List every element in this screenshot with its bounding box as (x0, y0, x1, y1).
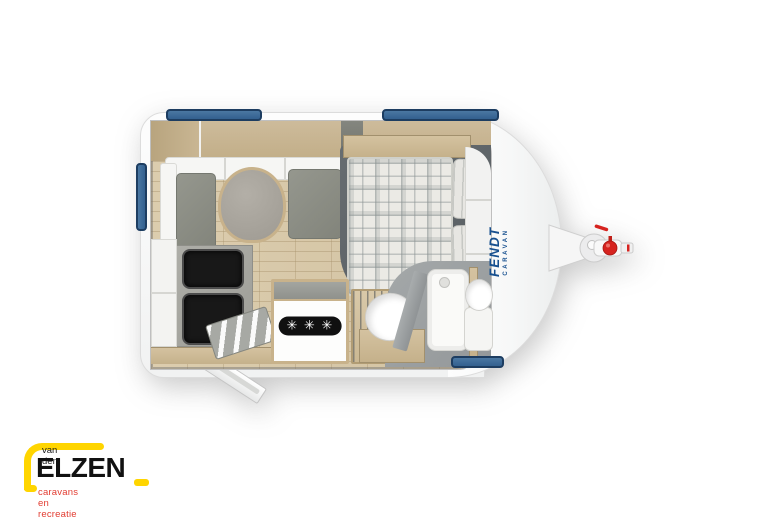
dinette-table (218, 167, 286, 243)
bathroom-window (451, 356, 504, 368)
rear-cabinet (151, 121, 201, 161)
roof-window-right (382, 109, 499, 121)
logo-line-elzen: ELZEN (36, 452, 125, 484)
tow-hitch (548, 212, 636, 284)
freezer-rating-badge: ✳ ✳ ✳ (279, 317, 342, 336)
hitch-red-lever (594, 224, 608, 232)
page-background: ✳ ✳ ✳ FENDT CARAVAN van den ELZEN carava… (0, 0, 768, 512)
refrigerator-top (274, 282, 346, 301)
dinette-bench-left (176, 173, 216, 251)
roof-window-left (166, 109, 262, 121)
brand-sub-text: CARAVAN (503, 207, 509, 297)
toilet-base (464, 307, 493, 351)
logo-yellow-underscore (134, 479, 149, 486)
shower-drain (439, 277, 450, 288)
kitchen-cabinet-fronts (151, 239, 177, 351)
logo-bracket-foot (24, 485, 37, 492)
logo-bracket-cap (96, 443, 104, 450)
kitchen-hob (182, 249, 244, 289)
bed-headboard-shelf (343, 135, 471, 158)
refrigerator: ✳ ✳ ✳ (271, 279, 349, 364)
fendt-brand-label: FENDT CARAVAN (488, 207, 528, 297)
brand-name-text: FENDT (488, 207, 502, 297)
caravan-interior: ✳ ✳ ✳ (151, 121, 491, 369)
logo-line-subtitle: caravans en recreatie (38, 487, 78, 520)
dinette-bench-right (288, 169, 342, 239)
hitch-red-knob (603, 241, 617, 255)
rear-side-window (136, 163, 147, 231)
